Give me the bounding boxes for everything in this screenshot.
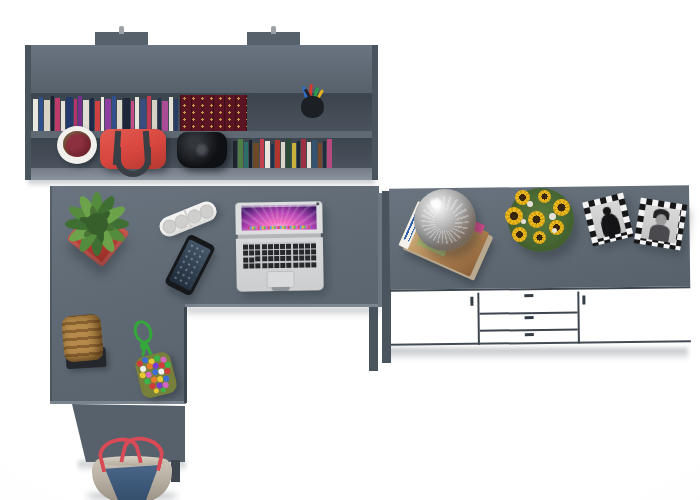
lamp-ridges xyxy=(421,196,468,243)
drawer-handle xyxy=(525,316,534,319)
book-spine xyxy=(249,140,252,168)
panel-seam xyxy=(477,293,480,345)
drawer-seam xyxy=(480,329,578,332)
antique-book-set xyxy=(180,95,247,131)
book-spine xyxy=(123,98,130,131)
laptop-deck xyxy=(236,237,324,292)
book-spine xyxy=(131,101,134,131)
book-spine xyxy=(169,97,173,131)
bracket-pin-icon xyxy=(271,26,276,34)
pen-cup-body xyxy=(301,96,324,118)
book-spine xyxy=(95,101,100,131)
sunflower-bloom xyxy=(549,213,556,220)
book-spine xyxy=(297,141,300,168)
book-spine xyxy=(55,98,60,131)
book-spine xyxy=(265,141,270,168)
figure-body xyxy=(599,212,622,239)
bead-pouch-with-cord xyxy=(126,314,180,400)
sunflower-bloom xyxy=(549,220,564,235)
sunflower-bloom xyxy=(512,227,527,242)
sunflower-bloom xyxy=(553,199,570,216)
drawer-handle xyxy=(524,294,533,297)
sideboard-front xyxy=(390,290,691,346)
camera-lens xyxy=(195,142,209,160)
bead xyxy=(164,367,171,374)
book-spine xyxy=(44,100,50,131)
laptop-display xyxy=(241,204,316,230)
book-spine xyxy=(51,96,54,131)
book-spine xyxy=(260,139,264,168)
desk-front-edge xyxy=(185,304,379,307)
book-spine xyxy=(275,140,280,168)
sunflower-bouquet xyxy=(508,188,574,252)
book-spine xyxy=(140,99,146,131)
book-spine xyxy=(312,140,317,168)
book-spine xyxy=(61,101,65,131)
panel-seam xyxy=(577,292,580,344)
book-spine xyxy=(152,100,157,131)
red-handbag xyxy=(100,129,166,169)
film-strip-photo-frame-right xyxy=(634,198,688,251)
shelf-side-panel-right xyxy=(372,45,378,180)
book-spine xyxy=(135,97,139,131)
bead xyxy=(153,388,159,394)
mounting-bracket-right xyxy=(247,32,300,46)
book-spine xyxy=(327,139,332,168)
book-spine xyxy=(162,101,168,131)
book-spine xyxy=(117,100,122,131)
book-spine xyxy=(101,97,104,131)
book-spine xyxy=(233,141,237,168)
photo-portrait-face xyxy=(641,204,681,243)
photo-woman-in-black-dress xyxy=(589,200,626,239)
sunflower-bloom xyxy=(538,190,551,203)
book-spine xyxy=(318,143,322,168)
book-spine xyxy=(33,99,38,131)
laptop-latch-notch xyxy=(272,287,290,291)
book-spine xyxy=(105,99,111,131)
wall-shelf-unit xyxy=(25,32,378,182)
lamp-highlight xyxy=(430,199,442,208)
desk-inner-edge xyxy=(184,307,187,403)
bracket-pin-icon xyxy=(119,26,124,34)
book-spine xyxy=(238,139,243,168)
book-spine xyxy=(158,98,161,131)
door-handle xyxy=(582,295,585,304)
book-spine xyxy=(301,139,306,168)
laptop-lid xyxy=(235,201,323,235)
book-spine xyxy=(307,142,311,168)
wicker-basket xyxy=(61,313,104,362)
book-spine xyxy=(174,99,178,131)
books-upper-row xyxy=(33,96,178,131)
scene-office-desk-set-top-view xyxy=(0,0,700,500)
mounting-bracket-left xyxy=(95,32,148,46)
door-handle xyxy=(470,297,473,306)
desk-leg-right xyxy=(369,307,378,371)
tote-bag xyxy=(92,446,172,500)
shelf-bottom-board xyxy=(30,168,373,180)
sunflower-bloom xyxy=(521,219,526,224)
book-spine xyxy=(112,96,116,131)
chrome-dome-lamp xyxy=(414,189,476,251)
bead-pouch xyxy=(133,350,178,399)
book-spine xyxy=(253,143,259,168)
book-spine xyxy=(281,142,285,168)
sunflower-bloom xyxy=(528,211,545,228)
menu-bar xyxy=(241,204,316,207)
sunflower-bloom xyxy=(527,201,533,207)
red-flowers xyxy=(63,131,91,157)
shelf-side-panel-left xyxy=(25,45,31,180)
cord-knot xyxy=(140,342,148,350)
laptop xyxy=(235,201,324,292)
book-spine xyxy=(323,141,326,168)
laptop-keyboard xyxy=(243,241,316,268)
pen-cup xyxy=(301,84,327,120)
book-spine xyxy=(90,98,94,131)
desk-leg-arm xyxy=(171,460,180,482)
bead xyxy=(160,387,166,393)
desk-arm-front-edge xyxy=(50,401,186,404)
laptop-trackpad xyxy=(266,271,294,288)
black-camera xyxy=(177,132,227,168)
book-spine xyxy=(39,97,43,131)
green-plant xyxy=(55,186,139,264)
drawer-seam xyxy=(480,312,578,315)
desk-floor-shadow xyxy=(186,307,379,318)
sunflower-bloom xyxy=(552,228,557,233)
book-spine xyxy=(292,143,296,168)
webcam-icon xyxy=(316,202,319,205)
sunflower-bloom xyxy=(533,231,546,244)
book-spine xyxy=(147,96,151,131)
white-flower-pot xyxy=(57,126,97,164)
portrait-torso xyxy=(648,224,670,243)
books-lower-row xyxy=(233,139,333,168)
drawer-handle xyxy=(525,333,534,336)
plant-leaf xyxy=(86,213,108,235)
book-spine xyxy=(271,144,274,168)
book-spine xyxy=(286,139,291,168)
book-spine xyxy=(244,142,248,168)
dock-bar xyxy=(248,225,311,229)
